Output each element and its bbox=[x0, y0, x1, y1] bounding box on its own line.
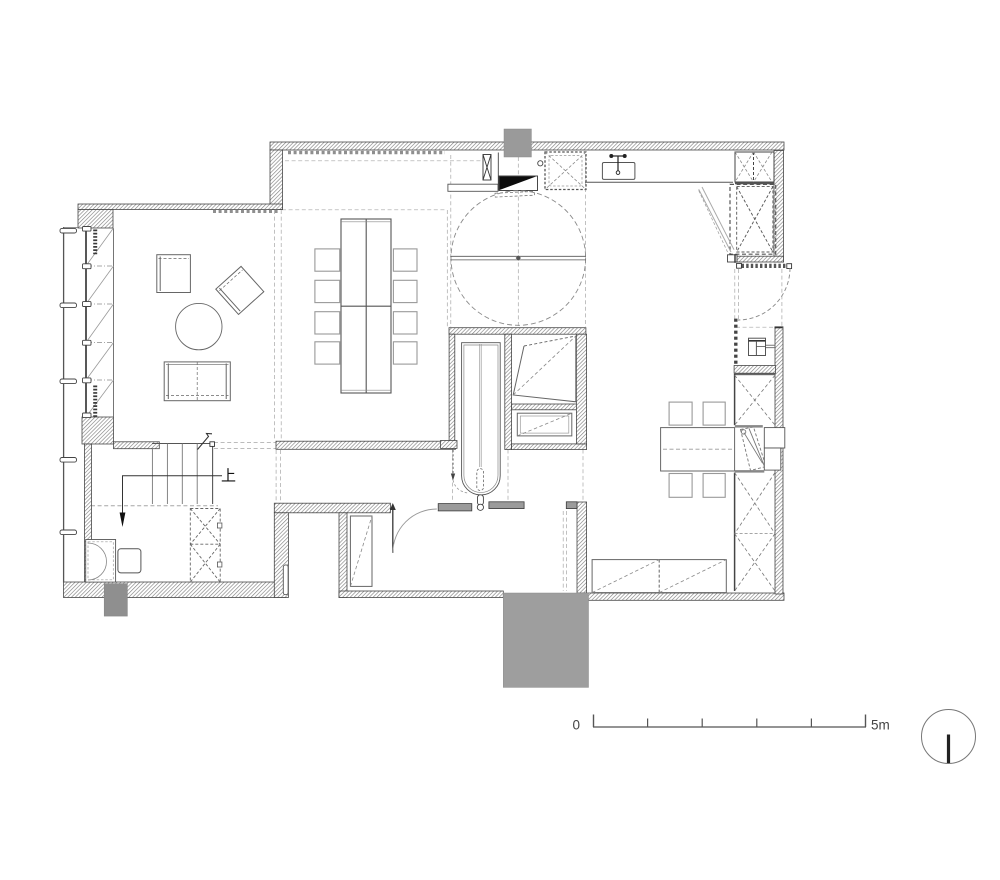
svg-text:5m: 5m bbox=[871, 718, 890, 733]
svg-text:0: 0 bbox=[572, 718, 580, 733]
svg-text:上: 上 bbox=[221, 468, 236, 485]
